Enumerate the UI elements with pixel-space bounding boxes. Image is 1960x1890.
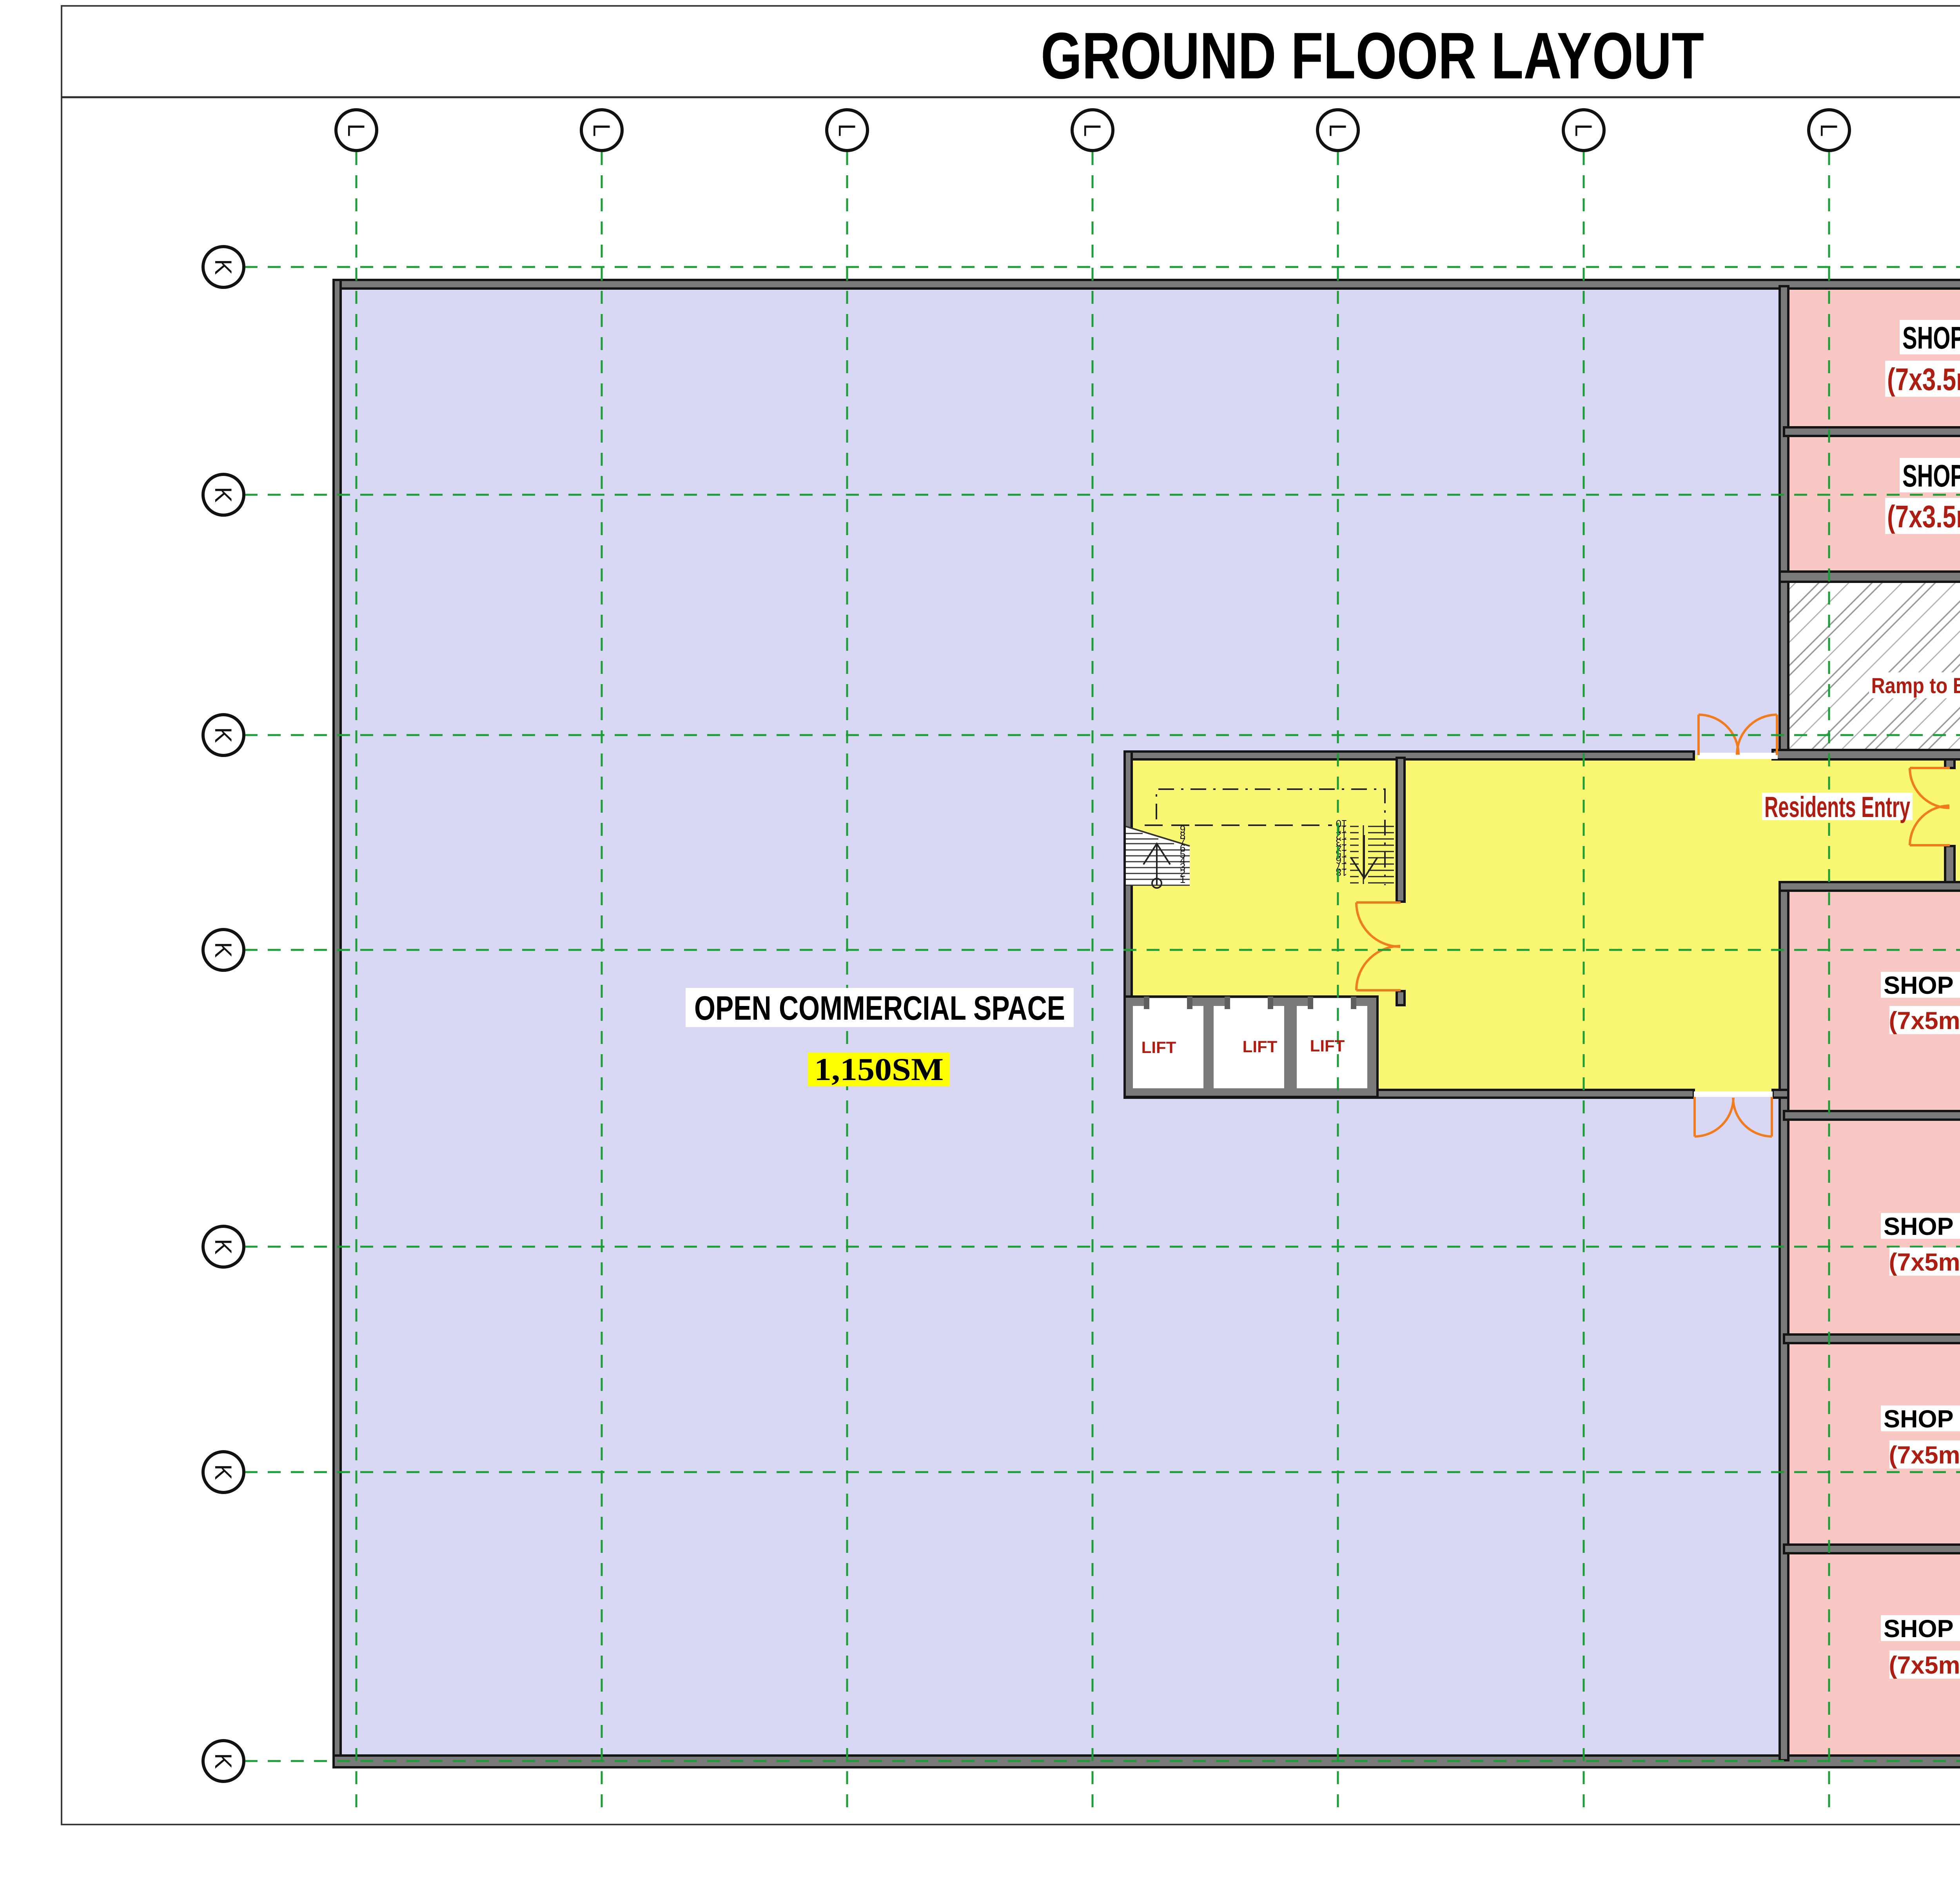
svg-text:SHOP 6: SHOP 6 — [1902, 320, 1960, 355]
svg-text:OPEN COMMERCIAL SPACE: OPEN COMMERCIAL SPACE — [694, 989, 1065, 1027]
svg-text:(7x5m): (7x5m) — [1889, 1442, 1960, 1469]
svg-text:Ramp to Basement: Ramp to Basement — [1871, 673, 1960, 698]
svg-text:SHOP 5: SHOP 5 — [1902, 458, 1960, 493]
svg-text:K: K — [210, 1753, 236, 1769]
svg-text:L: L — [1570, 123, 1597, 136]
svg-text:K: K — [210, 942, 236, 958]
svg-text:K: K — [210, 487, 236, 503]
svg-text:L: L — [834, 123, 860, 136]
svg-text:K: K — [210, 1464, 236, 1480]
svg-text:GROUND FLOOR LAYOUT: GROUND FLOOR LAYOUT — [1041, 19, 1704, 93]
svg-text:SHOP 1: SHOP 1 — [1884, 1615, 1960, 1643]
svg-text:(7x5m): (7x5m) — [1889, 1249, 1960, 1276]
svg-text:SHOP 3: SHOP 3 — [1884, 1213, 1960, 1240]
svg-text:(7x5m): (7x5m) — [1889, 1652, 1960, 1679]
svg-text:1,150SM: 1,150SM — [814, 1051, 944, 1087]
svg-text:SHOP 4: SHOP 4 — [1884, 972, 1960, 999]
svg-text:L: L — [588, 123, 615, 136]
svg-text:(7x3.5m): (7x3.5m) — [1887, 362, 1960, 397]
svg-text:L: L — [343, 123, 369, 136]
svg-text:L: L — [1079, 123, 1105, 136]
svg-text:LIFT: LIFT — [1243, 1037, 1278, 1056]
svg-text:L: L — [1816, 123, 1842, 136]
svg-text:K: K — [210, 727, 236, 743]
svg-text:K: K — [210, 1239, 236, 1255]
svg-text:Residents Entry: Residents Entry — [1764, 791, 1910, 823]
svg-text:LIFT: LIFT — [1310, 1037, 1345, 1055]
svg-text:(7x5m): (7x5m) — [1889, 1007, 1960, 1035]
svg-text:L: L — [1325, 123, 1351, 136]
svg-text:LIFT: LIFT — [1142, 1038, 1176, 1057]
svg-text:SHOP 2: SHOP 2 — [1884, 1405, 1960, 1433]
svg-text:K: K — [210, 259, 236, 275]
svg-text:(7x3.5m): (7x3.5m) — [1887, 499, 1960, 534]
